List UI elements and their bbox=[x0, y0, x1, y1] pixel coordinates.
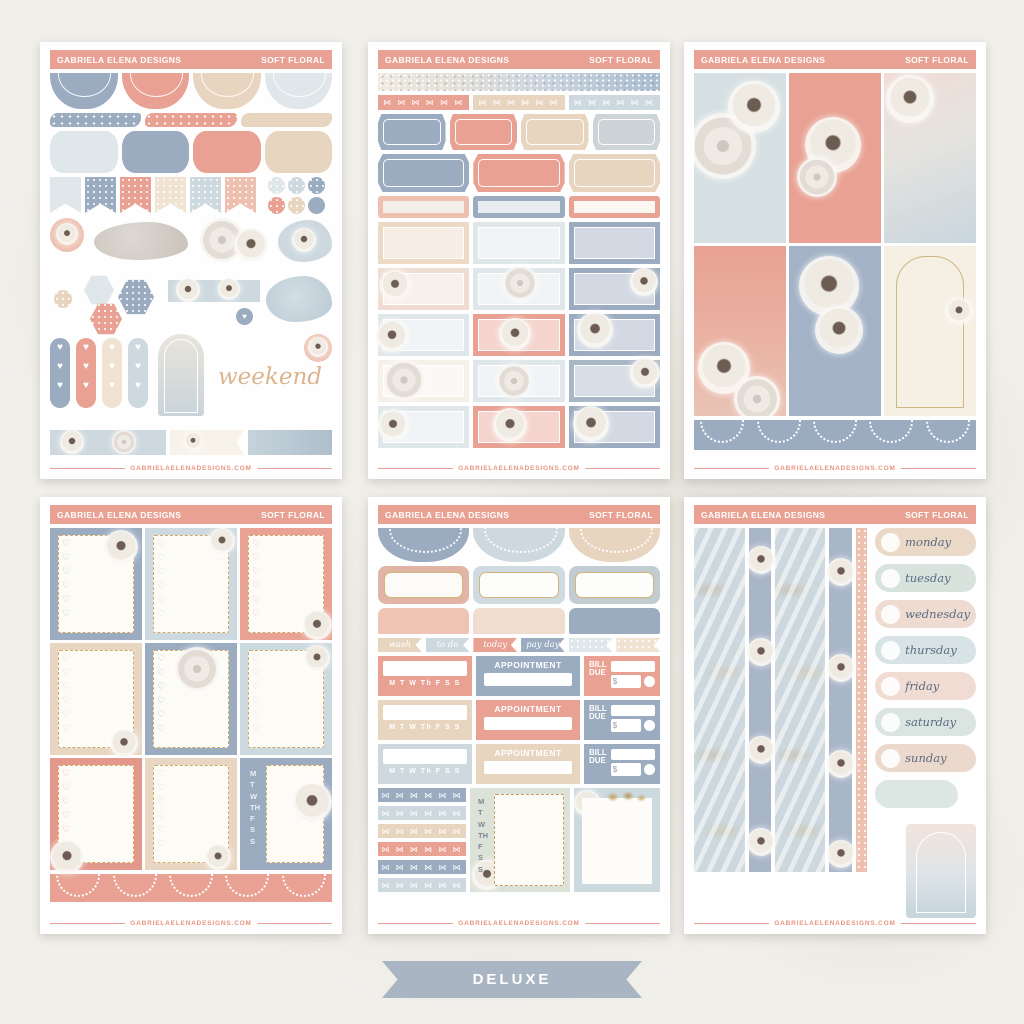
pennant-sticker bbox=[225, 177, 256, 213]
weekend-script-sticker: weekend bbox=[208, 364, 332, 390]
half-box-sticker bbox=[378, 222, 469, 264]
heart-checkbox-column: ♡ ♡ ♡ ♡ ♡ ♡ bbox=[252, 652, 260, 736]
watercolor-washi-strip bbox=[248, 430, 332, 455]
appointment-label: APPOINTMENT bbox=[476, 660, 580, 670]
half-box-sticker bbox=[378, 314, 469, 356]
bottom-cluster: ⋈ ⋈ ⋈ ⋈ ⋈ ⋈ ⋈ ⋈ ⋈ ⋈ ⋈ ⋈ ⋈ ⋈ ⋈ ⋈ ⋈ ⋈ ⋈ ⋈ … bbox=[378, 788, 660, 892]
flag-label: to do bbox=[437, 640, 459, 650]
circle-sticker bbox=[288, 177, 305, 194]
bill-due-sticker: BILLDUE $ bbox=[584, 700, 660, 740]
bill-label: DUE bbox=[589, 668, 606, 677]
half-box-row bbox=[378, 222, 660, 264]
bottom-washi-row bbox=[50, 430, 332, 455]
bow-icon: ⋈ ⋈ ⋈ ⋈ ⋈ ⋈ bbox=[574, 98, 655, 107]
half-box-sticker bbox=[473, 406, 564, 448]
hexagon-sticker bbox=[118, 278, 154, 316]
sheet-footer: GABRIELAELENADESIGNS.COM bbox=[50, 920, 332, 927]
scallop-sticker bbox=[473, 528, 564, 562]
half-box-sticker bbox=[473, 268, 564, 310]
collection-name: SOFT FLORAL bbox=[261, 55, 325, 65]
flag-sticker: pay day bbox=[521, 638, 565, 652]
half-box-row bbox=[378, 406, 660, 448]
ticket-label-row bbox=[378, 154, 660, 192]
circle-sticker bbox=[268, 197, 285, 214]
photo-box-sticker: ♡ ♡ ♡ ♡ ♡ ♡ bbox=[50, 758, 142, 870]
floral-washi-strip bbox=[168, 280, 260, 302]
website-url: GABRIELAELENADESIGNS.COM bbox=[774, 465, 895, 472]
functional-row: M T W Th F S S APPOINTMENT BILLDUE $ bbox=[378, 744, 660, 784]
full-box-sticker bbox=[694, 73, 786, 243]
functional-row: M T W Th F S S APPOINTMENT BILLDUE $ bbox=[378, 656, 660, 696]
brush-stroke-sticker bbox=[145, 113, 236, 127]
bow-icon: ⋈ ⋈ ⋈ ⋈ ⋈ ⋈ bbox=[381, 791, 462, 800]
product-image: { "palette":{"salmon":"#E8A192","blue_gr… bbox=[0, 0, 1024, 1024]
day-circle bbox=[881, 569, 900, 588]
half-box-sticker bbox=[473, 222, 564, 264]
photo-box-sticker: M T W TH F S S bbox=[240, 758, 332, 870]
photo-box-sticker: ♡ ♡ ♡ ♡ ♡ ♡ bbox=[145, 643, 237, 755]
heart-checklist-banner: ♥ ♥ ♥ bbox=[50, 338, 70, 408]
blank-label-sticker bbox=[875, 780, 958, 808]
collection-name: SOFT FLORAL bbox=[261, 510, 325, 520]
brand-name: GABRIELA ELENA DESIGNS bbox=[701, 510, 825, 520]
pennant-sticker bbox=[155, 177, 186, 213]
half-box-sticker bbox=[569, 222, 660, 264]
sheet-footer: GABRIELAELENADESIGNS.COM bbox=[378, 465, 660, 472]
website-url: GABRIELAELENADESIGNS.COM bbox=[458, 920, 579, 927]
day-label: wednesday bbox=[905, 607, 970, 621]
brand-name: GABRIELA ELENA DESIGNS bbox=[385, 510, 509, 520]
flag-sticker bbox=[170, 430, 244, 455]
day-circle bbox=[881, 605, 900, 624]
ticket-label-sticker bbox=[378, 154, 469, 192]
ticket-label-sticker bbox=[569, 154, 660, 192]
ticket-label-sticker bbox=[593, 114, 661, 150]
half-box-sticker bbox=[378, 360, 469, 402]
deco-label-sticker bbox=[378, 566, 469, 604]
leaf-washi-strip bbox=[775, 528, 826, 872]
photo-box-sticker: ♡ ♡ ♡ ♡ ♡ ♡ bbox=[145, 528, 237, 640]
appointment-label: APPOINTMENT bbox=[476, 704, 580, 714]
sticker-sheet-sampler: GABRIELA ELENA DESIGNS SOFT FLORAL bbox=[40, 42, 342, 479]
deco-label-row bbox=[378, 566, 660, 604]
bow-washi-row: ⋈ ⋈ ⋈ ⋈ ⋈ ⋈ ⋈ ⋈ ⋈ ⋈ ⋈ ⋈ ⋈ ⋈ ⋈ ⋈ ⋈ ⋈ bbox=[378, 95, 660, 110]
pennant-sticker bbox=[120, 177, 151, 213]
misc-sticker-cluster bbox=[50, 218, 332, 268]
week-tracker-sticker: M T W Th F S S bbox=[378, 744, 472, 784]
ticket-label-sticker bbox=[378, 114, 446, 150]
sheet-header: GABRIELA ELENA DESIGNS SOFT FLORAL bbox=[694, 50, 976, 69]
full-box-sticker bbox=[884, 246, 976, 416]
sheet-footer: GABRIELAELENADESIGNS.COM bbox=[694, 920, 976, 927]
scallop-sticker bbox=[122, 73, 190, 109]
flag-sticker: today bbox=[473, 638, 517, 652]
sheet-header: GABRIELA ELENA DESIGNS SOFT FLORAL bbox=[694, 505, 976, 524]
appointment-sticker: APPOINTMENT bbox=[476, 700, 580, 740]
bracket-frame-sticker bbox=[265, 131, 333, 173]
arch-sticker bbox=[158, 334, 204, 416]
bracket-frame-sticker bbox=[50, 131, 118, 173]
day-circle bbox=[881, 713, 900, 732]
flower-sticker bbox=[234, 228, 268, 262]
sheet-header: GABRIELA ELENA DESIGNS SOFT FLORAL bbox=[50, 505, 332, 524]
full-box-sticker bbox=[884, 73, 976, 243]
half-box-sticker bbox=[473, 360, 564, 402]
half-box-sticker bbox=[378, 406, 469, 448]
hexagon-cluster: ♥ bbox=[50, 272, 332, 330]
floral-washi-strip bbox=[829, 528, 851, 872]
bow-icon: ⋈ ⋈ ⋈ ⋈ ⋈ ⋈ bbox=[381, 881, 462, 890]
ticket-label-sticker bbox=[450, 114, 518, 150]
currency-symbol: $ bbox=[613, 765, 617, 774]
pennant-sticker bbox=[50, 177, 81, 213]
pennant-row bbox=[50, 177, 332, 214]
ticket-label-sticker bbox=[521, 114, 589, 150]
half-box-row bbox=[378, 314, 660, 356]
bow-washi-strip: ⋈ ⋈ ⋈ ⋈ ⋈ ⋈ bbox=[378, 824, 466, 838]
collection-name: SOFT FLORAL bbox=[905, 510, 969, 520]
deco-label-sticker bbox=[473, 566, 564, 604]
hearts-weekend-cluster: ♥ ♥ ♥ ♥ ♥ ♥ ♥ ♥ ♥ ♥ ♥ ♥ weekend bbox=[50, 334, 332, 426]
bracket-frame-sticker bbox=[193, 131, 261, 173]
lace-washi-strip bbox=[50, 874, 332, 902]
day-label-sticker: wednesday bbox=[875, 600, 976, 628]
floral-circle-sticker bbox=[304, 334, 332, 362]
bow-washi-strip: ⋈ ⋈ ⋈ ⋈ ⋈ ⋈ bbox=[378, 860, 466, 874]
brush-stroke-sticker bbox=[241, 113, 332, 127]
day-label-column: monday tuesday wednesday thursday friday… bbox=[871, 528, 976, 912]
currency-symbol: $ bbox=[613, 721, 617, 730]
bow-icon: ⋈ ⋈ ⋈ ⋈ ⋈ ⋈ bbox=[383, 98, 464, 107]
bow-washi-strip: ⋈ ⋈ ⋈ ⋈ ⋈ ⋈ bbox=[378, 842, 466, 856]
scallop-top-box-row bbox=[378, 608, 660, 634]
bow-icon: ⋈ ⋈ ⋈ ⋈ ⋈ ⋈ bbox=[381, 809, 462, 818]
collection-name: SOFT FLORAL bbox=[589, 55, 653, 65]
full-box-grid bbox=[694, 73, 976, 416]
heart-icon: ♥ ♥ ♥ bbox=[83, 342, 89, 391]
sheet-header: GABRIELA ELENA DESIGNS SOFT FLORAL bbox=[378, 505, 660, 524]
sticker-sheet-full-boxes: GABRIELA ELENA DESIGNS SOFT FLORAL GABRI… bbox=[684, 42, 986, 479]
pennant-sticker bbox=[190, 177, 221, 213]
deluxe-label: DELUXE bbox=[473, 971, 552, 988]
day-label: sunday bbox=[905, 751, 946, 765]
heart-checklist-banner: ♥ ♥ ♥ bbox=[102, 338, 122, 408]
bow-icon: ⋈ ⋈ ⋈ ⋈ ⋈ ⋈ bbox=[381, 845, 462, 854]
brush-stroke-row bbox=[50, 113, 332, 127]
scallop-box-sticker bbox=[473, 608, 564, 634]
photo-box-sticker: ♡ ♡ ♡ ♡ ♡ ♡ bbox=[50, 643, 142, 755]
photo-box-sticker: ♡ ♡ ♡ ♡ ♡ ♡ bbox=[50, 528, 142, 640]
sheet-body: wash to do today pay day M T W Th F S S … bbox=[378, 528, 660, 912]
flag-label: wash bbox=[389, 640, 411, 650]
half-box-row bbox=[378, 268, 660, 310]
bow-washi-column: ⋈ ⋈ ⋈ ⋈ ⋈ ⋈ ⋈ ⋈ ⋈ ⋈ ⋈ ⋈ ⋈ ⋈ ⋈ ⋈ ⋈ ⋈ ⋈ ⋈ … bbox=[378, 788, 466, 892]
brand-name: GABRIELA ELENA DESIGNS bbox=[385, 55, 509, 65]
heart-checklist-banner: ♥ ♥ ♥ bbox=[128, 338, 148, 408]
day-circle bbox=[881, 749, 900, 768]
half-box-sticker bbox=[473, 314, 564, 356]
framed-box-sticker bbox=[569, 196, 660, 218]
sheet-header: GABRIELA ELENA DESIGNS SOFT FLORAL bbox=[50, 50, 332, 69]
heart-checkbox-column: ♡ ♡ ♡ ♡ ♡ ♡ bbox=[157, 767, 165, 851]
sheet-body: ♥ ♥ ♥ ♥ ♥ ♥ ♥ ♥ ♥ ♥ ♥ ♥ ♥ weekend bbox=[50, 73, 332, 457]
bow-washi-strip: ⋈ ⋈ ⋈ ⋈ ⋈ ⋈ bbox=[473, 95, 564, 110]
day-label: saturday bbox=[905, 715, 956, 729]
full-box-sticker bbox=[789, 73, 881, 243]
scallop-box-sticker bbox=[378, 608, 469, 634]
appointment-sticker: APPOINTMENT bbox=[476, 656, 580, 696]
washi-piece-sticker bbox=[278, 220, 332, 262]
floral-circle-sticker bbox=[50, 218, 84, 252]
day-label-sticker: sunday bbox=[875, 744, 976, 772]
bow-icon: ⋈ ⋈ ⋈ ⋈ ⋈ ⋈ bbox=[381, 827, 462, 836]
day-label-sticker: tuesday bbox=[875, 564, 976, 592]
website-url: GABRIELAELENADESIGNS.COM bbox=[458, 465, 579, 472]
week-letters: M T W Th F S S bbox=[383, 724, 467, 731]
collection-name: SOFT FLORAL bbox=[905, 55, 969, 65]
day-label-sticker: monday bbox=[875, 528, 976, 556]
brush-stroke-sticker bbox=[50, 113, 141, 127]
washi-days-layout: monday tuesday wednesday thursday friday… bbox=[694, 528, 976, 912]
flag-label: today bbox=[483, 640, 507, 650]
day-circle bbox=[881, 641, 900, 660]
scallop-box-sticker bbox=[569, 608, 660, 634]
leaf-washi-strip bbox=[694, 528, 745, 872]
framed-box-sticker bbox=[378, 196, 469, 218]
brand-name: GABRIELA ELENA DESIGNS bbox=[57, 55, 181, 65]
heart-checkbox-column: ♡ ♡ ♡ ♡ ♡ ♡ bbox=[62, 652, 70, 736]
half-box-sticker bbox=[378, 268, 469, 310]
full-box-sticker bbox=[789, 246, 881, 416]
website-url: GABRIELAELENADESIGNS.COM bbox=[130, 465, 251, 472]
sticker-sheet-functional: GABRIELA ELENA DESIGNS SOFT FLORAL wash … bbox=[368, 497, 670, 934]
flag-sticker bbox=[616, 638, 660, 652]
dotted-washi-strip bbox=[856, 528, 867, 872]
full-box-sticker bbox=[694, 246, 786, 416]
appointment-sticker: APPOINTMENT bbox=[476, 744, 580, 784]
sheet-header: GABRIELA ELENA DESIGNS SOFT FLORAL bbox=[378, 50, 660, 69]
sheet-body: ⋈ ⋈ ⋈ ⋈ ⋈ ⋈ ⋈ ⋈ ⋈ ⋈ ⋈ ⋈ ⋈ ⋈ ⋈ ⋈ ⋈ ⋈ bbox=[378, 73, 660, 457]
photo-box-sticker: ♡ ♡ ♡ ♡ ♡ ♡ bbox=[145, 758, 237, 870]
sheet-body: ♡ ♡ ♡ ♡ ♡ ♡ ♡ ♡ ♡ ♡ ♡ ♡ ♡ ♡ ♡ ♡ ♡ ♡ ♡ ♡ … bbox=[50, 528, 332, 912]
heart-checkbox-column: ♡ ♡ ♡ ♡ ♡ ♡ bbox=[252, 537, 260, 621]
bow-washi-strip: ⋈ ⋈ ⋈ ⋈ ⋈ ⋈ bbox=[378, 788, 466, 802]
deco-label-sticker bbox=[569, 566, 660, 604]
flag-sticker bbox=[569, 638, 613, 652]
bill-due-sticker: BILLDUE $ bbox=[584, 656, 660, 696]
scallop-sticker bbox=[265, 73, 333, 109]
bill-due-sticker: BILLDUE $ bbox=[584, 744, 660, 784]
hexagon-sticker bbox=[90, 302, 122, 336]
day-label-sticker: saturday bbox=[875, 708, 976, 736]
sticker-sheet-labels: GABRIELA ELENA DESIGNS SOFT FLORAL ⋈ ⋈ ⋈… bbox=[368, 42, 670, 479]
heart-checkbox-column: ♡ ♡ ♡ ♡ ♡ ♡ bbox=[157, 537, 165, 621]
bow-washi-strip: ⋈ ⋈ ⋈ ⋈ ⋈ ⋈ bbox=[569, 95, 660, 110]
brand-name: GABRIELA ELENA DESIGNS bbox=[701, 55, 825, 65]
bow-icon: ⋈ ⋈ ⋈ ⋈ ⋈ ⋈ bbox=[381, 863, 462, 872]
lace-washi-strip bbox=[694, 420, 976, 450]
flag-sticker: to do bbox=[426, 638, 470, 652]
heart-checkbox-column: ♡ ♡ ♡ ♡ ♡ ♡ bbox=[62, 767, 70, 851]
day-circle bbox=[881, 533, 900, 552]
functional-row: M T W Th F S S APPOINTMENT BILLDUE $ bbox=[378, 700, 660, 740]
circle-sticker bbox=[308, 177, 325, 194]
heart-icon: ♥ ♥ ♥ bbox=[109, 342, 115, 391]
floral-washi-strip bbox=[50, 430, 166, 455]
sheet-body bbox=[694, 73, 976, 457]
sheet-body: monday tuesday wednesday thursday friday… bbox=[694, 528, 976, 912]
week-letters: M T W Th F S S bbox=[383, 680, 467, 687]
appointment-label: APPOINTMENT bbox=[476, 748, 580, 758]
scallop-sticker bbox=[193, 73, 261, 109]
heart-circle-sticker: ♥ bbox=[236, 308, 253, 325]
day-label-sticker: thursday bbox=[875, 636, 976, 664]
bill-label: DUE bbox=[589, 712, 606, 721]
bow-washi-strip: ⋈ ⋈ ⋈ ⋈ ⋈ ⋈ bbox=[378, 878, 466, 892]
photo-box-grid: ♡ ♡ ♡ ♡ ♡ ♡ ♡ ♡ ♡ ♡ ♡ ♡ ♡ ♡ ♡ ♡ ♡ ♡ ♡ ♡ … bbox=[50, 528, 332, 870]
day-label: monday bbox=[905, 535, 951, 549]
website-url: GABRIELAELENADESIGNS.COM bbox=[130, 920, 251, 927]
sheet-footer: GABRIELAELENADESIGNS.COM bbox=[378, 920, 660, 927]
scallop-sticker-row bbox=[50, 73, 332, 109]
week-tracker-sticker: M T W Th F S S bbox=[378, 700, 472, 740]
bill-label: DUE bbox=[589, 756, 606, 765]
sticker-sheet-washi-days: GABRIELA ELENA DESIGNS SOFT FLORAL monda… bbox=[684, 497, 986, 934]
heart-checkbox-column: ♡ ♡ ♡ ♡ ♡ ♡ bbox=[62, 537, 70, 621]
bracket-frame-row bbox=[50, 131, 332, 173]
arch-sticker bbox=[906, 824, 976, 918]
heart-icon: ♥ ♥ ♥ bbox=[135, 342, 141, 391]
photo-sticker bbox=[574, 788, 660, 892]
deluxe-ribbon-banner: DELUXE bbox=[382, 961, 642, 998]
half-box-sticker bbox=[569, 268, 660, 310]
week-tracker-sticker: M T W Th F S S bbox=[378, 656, 472, 696]
day-circle bbox=[881, 677, 900, 696]
scallop-sticker bbox=[378, 528, 469, 562]
floral-washi-strip bbox=[749, 528, 771, 872]
circle-sticker bbox=[54, 290, 72, 308]
photo-box-sticker: ♡ ♡ ♡ ♡ ♡ ♡ bbox=[240, 528, 332, 640]
day-label-sticker: friday bbox=[875, 672, 976, 700]
sheet-footer: GABRIELAELENADESIGNS.COM bbox=[694, 465, 976, 472]
flag-sticker: wash bbox=[378, 638, 422, 652]
day-label: thursday bbox=[905, 643, 957, 657]
circle-sticker bbox=[308, 197, 325, 214]
ticket-label-row bbox=[378, 114, 660, 150]
day-label: tuesday bbox=[905, 571, 950, 585]
heart-icon: ♥ bbox=[242, 312, 247, 321]
bow-washi-strip: ⋈ ⋈ ⋈ ⋈ ⋈ ⋈ bbox=[378, 806, 466, 820]
bracket-frame-sticker bbox=[122, 131, 190, 173]
circle-sticker bbox=[288, 197, 305, 214]
circle-sticker bbox=[268, 177, 285, 194]
photo-box-sticker: ♡ ♡ ♡ ♡ ♡ ♡ bbox=[240, 643, 332, 755]
heart-icon: ♥ ♥ ♥ bbox=[57, 342, 63, 391]
bow-washi-strip: ⋈ ⋈ ⋈ ⋈ ⋈ ⋈ bbox=[378, 95, 469, 110]
half-box-sticker bbox=[569, 406, 660, 448]
glitter-washi-strip bbox=[378, 73, 660, 91]
sheet-footer: GABRIELAELENADESIGNS.COM bbox=[50, 465, 332, 472]
scallop-sticker bbox=[569, 528, 660, 562]
heart-checklist-banner: ♥ ♥ ♥ bbox=[76, 338, 96, 408]
flag-label: pay day bbox=[526, 640, 559, 650]
half-box-row bbox=[378, 360, 660, 402]
week-letter-column: M T W TH F S S bbox=[250, 768, 260, 847]
collection-name: SOFT FLORAL bbox=[589, 510, 653, 520]
hexagon-sticker bbox=[84, 274, 114, 306]
half-box-sticker bbox=[569, 314, 660, 356]
heart-checkbox-column: ♡ ♡ ♡ ♡ ♡ ♡ bbox=[157, 652, 165, 736]
currency-symbol: $ bbox=[613, 677, 617, 686]
ticket-label-sticker bbox=[473, 154, 564, 192]
bow-icon: ⋈ ⋈ ⋈ ⋈ ⋈ ⋈ bbox=[478, 98, 559, 107]
flag-row: wash to do today pay day bbox=[378, 638, 660, 652]
framed-box-sticker bbox=[473, 196, 564, 218]
day-label: friday bbox=[905, 679, 939, 693]
pennant-sticker bbox=[85, 177, 116, 213]
website-url: GABRIELAELENADESIGNS.COM bbox=[774, 920, 895, 927]
framed-box-row bbox=[378, 196, 660, 218]
dotted-scallop-row bbox=[378, 528, 660, 562]
scallop-sticker bbox=[50, 73, 118, 109]
brand-name: GABRIELA ELENA DESIGNS bbox=[57, 510, 181, 520]
watercolor-blob-sticker bbox=[266, 276, 332, 322]
week-photo-frame-sticker: M T W TH F S S bbox=[470, 788, 570, 892]
sticker-sheet-photo-boxes: GABRIELA ELENA DESIGNS SOFT FLORAL ♡ ♡ ♡… bbox=[40, 497, 342, 934]
half-box-sticker bbox=[569, 360, 660, 402]
week-letters: M T W Th F S S bbox=[383, 768, 467, 775]
week-letter-column: M T W TH F S S bbox=[478, 796, 488, 875]
watercolor-blob-sticker bbox=[94, 222, 188, 260]
dot-circle-cluster bbox=[268, 177, 325, 214]
